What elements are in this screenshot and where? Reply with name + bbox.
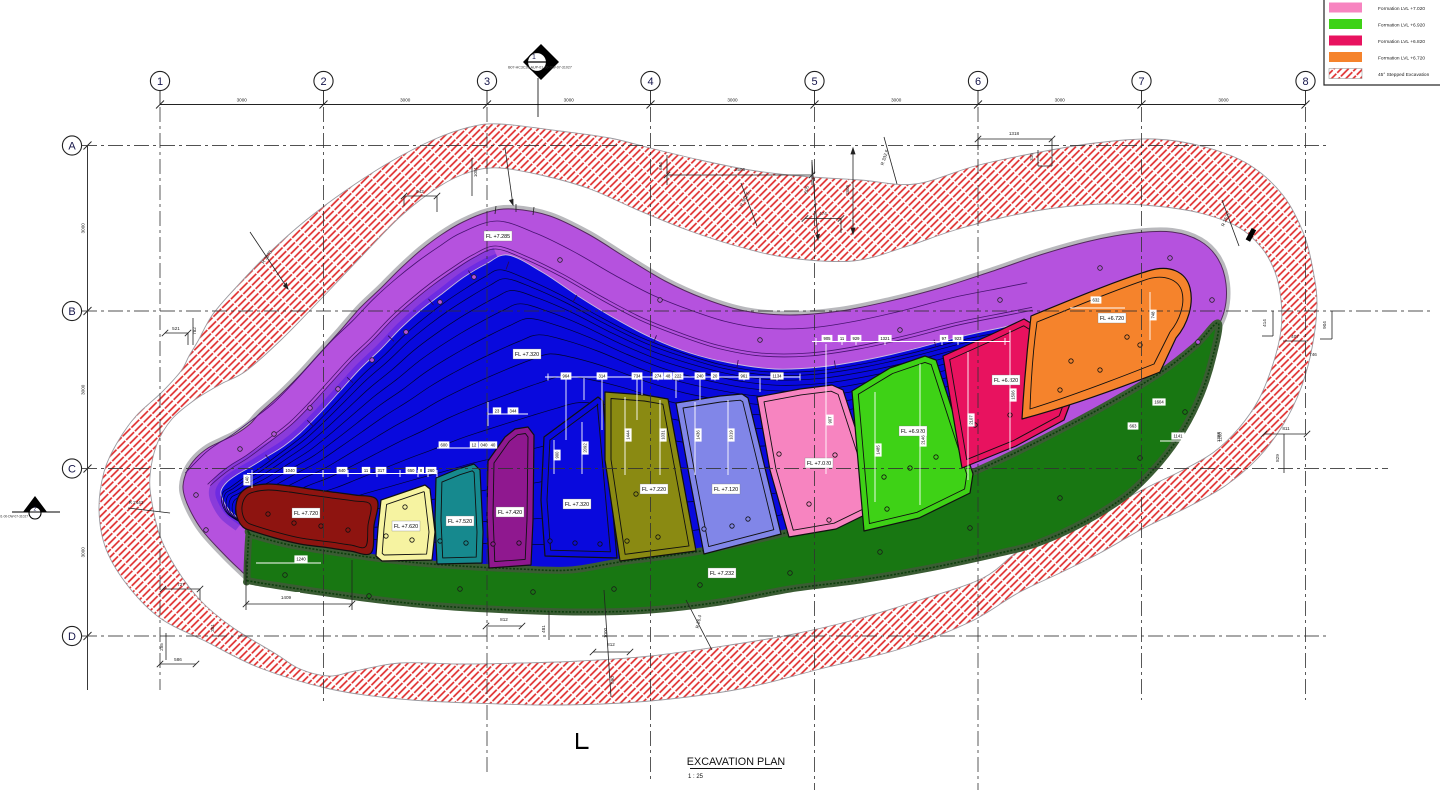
svg-text:FL +6.720: FL +6.720: [1100, 316, 1124, 322]
svg-text:1 : 25: 1 : 25: [688, 774, 704, 780]
svg-text:6: 6: [975, 76, 981, 88]
svg-text:586: 586: [174, 657, 182, 662]
svg-text:2: 2: [320, 76, 326, 88]
svg-text:664: 664: [658, 162, 663, 170]
svg-text:811: 811: [1282, 426, 1290, 431]
svg-text:1436: 1436: [696, 430, 701, 440]
svg-text:1806: 1806: [845, 184, 850, 195]
svg-text:1019: 1019: [729, 430, 734, 440]
svg-text:Formation LVL +6.820: Formation LVL +6.820: [1378, 39, 1425, 45]
svg-text:EXCAVATION PLAN: EXCAVATION PLAN: [687, 756, 785, 768]
svg-text:904: 904: [1322, 321, 1327, 329]
svg-text:344: 344: [510, 409, 518, 414]
svg-text:642: 642: [416, 189, 424, 194]
svg-text:3000: 3000: [81, 547, 86, 558]
svg-text:040: 040: [481, 443, 489, 448]
svg-text:140: 140: [245, 476, 250, 484]
svg-text:474: 474: [819, 211, 827, 216]
svg-text:632: 632: [1093, 298, 1101, 303]
svg-text:3000: 3000: [1218, 98, 1229, 103]
svg-text:990: 990: [610, 676, 615, 684]
svg-text:1051: 1051: [473, 166, 478, 177]
svg-text:FL +7.620: FL +7.620: [394, 524, 418, 530]
svg-text:274: 274: [655, 374, 663, 379]
svg-text:5: 5: [811, 76, 817, 88]
svg-text:923: 923: [955, 336, 963, 341]
svg-text:900: 900: [555, 451, 560, 459]
svg-text:3000: 3000: [727, 98, 738, 103]
svg-text:7: 7: [1138, 76, 1144, 88]
svg-text:Formation LVL +6.920: Formation LVL +6.920: [1378, 23, 1425, 29]
svg-text:2146: 2146: [921, 435, 926, 445]
svg-text:4: 4: [647, 76, 653, 88]
svg-text:C: C: [68, 464, 76, 476]
svg-text:FL +7.285: FL +7.285: [486, 234, 510, 240]
svg-text:260: 260: [428, 468, 436, 473]
svg-text:1: 1: [157, 76, 163, 88]
svg-text:240: 240: [697, 374, 705, 379]
svg-text:782: 782: [192, 327, 197, 335]
svg-text:3000: 3000: [81, 223, 86, 234]
svg-text:929: 929: [853, 336, 861, 341]
svg-text:1000: 1000: [603, 627, 608, 638]
svg-text:3000: 3000: [400, 98, 411, 103]
svg-text:1485: 1485: [876, 445, 881, 455]
svg-text:414: 414: [1262, 319, 1267, 327]
svg-text:748: 748: [1151, 311, 1156, 319]
svg-text:351: 351: [210, 624, 215, 632]
svg-text:961: 961: [741, 374, 749, 379]
svg-text:3000: 3000: [891, 98, 902, 103]
svg-text:12: 12: [472, 443, 477, 448]
svg-text:1268: 1268: [1216, 431, 1221, 442]
svg-text:1318: 1318: [1009, 131, 1020, 136]
svg-text:B07-HC3C20-AUP-01-00-DW-07-310: B07-HC3C20-AUP-01-00-DW-07-31027: [508, 66, 572, 70]
svg-text:1031: 1031: [661, 430, 666, 440]
svg-text:2: 2: [34, 507, 37, 513]
svg-text:B: B: [68, 306, 75, 318]
svg-text:650: 650: [408, 468, 416, 473]
svg-text:812: 812: [500, 617, 508, 622]
svg-text:521: 521: [172, 326, 180, 331]
svg-text:1444: 1444: [626, 430, 631, 440]
svg-text:Formation LVL +7.020: Formation LVL +7.020: [1378, 6, 1425, 12]
svg-text:3000: 3000: [1055, 98, 1066, 103]
svg-text:FL +7.232: FL +7.232: [710, 571, 734, 577]
svg-text:812: 812: [607, 642, 615, 647]
svg-text:8: 8: [1302, 76, 1308, 88]
svg-text:907: 907: [828, 416, 833, 424]
svg-text:FL +7.420: FL +7.420: [498, 510, 522, 516]
svg-text:600: 600: [441, 443, 449, 448]
svg-text:11: 11: [364, 468, 369, 473]
svg-text:1506: 1506: [1011, 390, 1016, 400]
svg-text:1141: 1141: [1173, 434, 1183, 439]
svg-text:FL +7.320: FL +7.320: [515, 352, 539, 358]
svg-text:1134: 1134: [772, 374, 782, 379]
svg-text:1: 1: [532, 54, 536, 61]
svg-text:11: 11: [840, 336, 845, 341]
svg-text:3: 3: [484, 76, 490, 88]
svg-text:B07-HC3C20-AUP-01-00-DW-07-310: B07-HC3C20-AUP-01-00-DW-07-31027: [0, 515, 28, 519]
svg-text:315: 315: [1029, 153, 1034, 161]
svg-text:FL +7.220: FL +7.220: [642, 487, 666, 493]
svg-text:2107: 2107: [969, 415, 974, 425]
svg-text:314: 314: [599, 374, 607, 379]
svg-text:1040: 1040: [285, 468, 295, 473]
svg-text:3000: 3000: [564, 98, 575, 103]
svg-text:727: 727: [177, 582, 185, 587]
svg-text:317: 317: [378, 468, 386, 473]
svg-text:97: 97: [942, 336, 947, 341]
svg-text:222: 222: [675, 374, 683, 379]
svg-text:407: 407: [1291, 334, 1299, 339]
svg-text:2092: 2092: [583, 443, 588, 453]
svg-text:Formation LVL +6.720: Formation LVL +6.720: [1378, 56, 1425, 62]
svg-text:48: 48: [666, 374, 671, 379]
svg-text:3000: 3000: [237, 98, 248, 103]
svg-text:663: 663: [1130, 424, 1138, 429]
svg-text:964: 964: [563, 374, 571, 379]
svg-text:R 2443: R 2443: [129, 500, 144, 505]
svg-text:829: 829: [1275, 454, 1280, 462]
svg-text:746: 746: [1309, 352, 1317, 357]
svg-text:255: 255: [159, 643, 164, 651]
svg-text:45° Stepped Excavation: 45° Stepped Excavation: [1378, 72, 1430, 78]
svg-text:A: A: [68, 141, 76, 153]
svg-text:FL +7.020: FL +7.020: [807, 461, 831, 467]
svg-text:40: 40: [491, 443, 496, 448]
svg-text:1240: 1240: [296, 557, 306, 562]
svg-text:D: D: [68, 631, 76, 643]
svg-text:FL +7.320: FL +7.320: [565, 502, 589, 508]
svg-text:1321: 1321: [880, 336, 890, 341]
svg-text:FL +7.720: FL +7.720: [294, 511, 318, 517]
svg-text:FL +6.820: FL +6.820: [994, 378, 1018, 384]
svg-text:1409: 1409: [281, 595, 292, 600]
svg-text:20: 20: [713, 374, 718, 379]
svg-text:905: 905: [824, 336, 832, 341]
svg-text:FL +7.520: FL +7.520: [448, 519, 472, 525]
svg-text:FL +7.120: FL +7.120: [714, 487, 738, 493]
svg-text:640: 640: [339, 468, 347, 473]
svg-text:734: 734: [634, 374, 642, 379]
svg-text:2596: 2596: [735, 167, 746, 172]
svg-text:23: 23: [495, 409, 500, 414]
svg-text:1604: 1604: [1154, 400, 1164, 405]
svg-text:481: 481: [541, 625, 546, 633]
svg-text:3000: 3000: [81, 384, 86, 395]
